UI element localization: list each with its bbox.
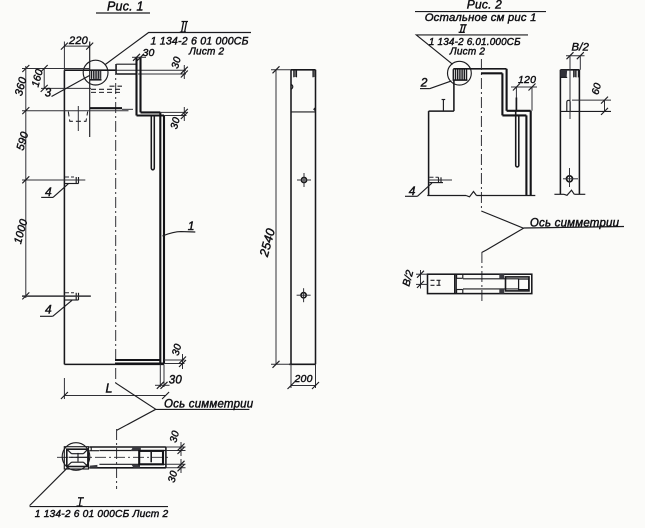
svg-text:Лист 2: Лист 2	[188, 46, 225, 57]
svg-text:Остальное см рис 1: Остальное см рис 1	[425, 12, 537, 24]
svg-text:Рис. 1: Рис. 1	[107, 0, 144, 14]
svg-text:1 134-2 6 01 000СБ Лист 2: 1 134-2 6 01 000СБ Лист 2	[35, 509, 169, 520]
svg-text:Рис. 2: Рис. 2	[467, 0, 502, 12]
svg-text:Лист 2: Лист 2	[449, 46, 486, 57]
svg-text:В/2: В/2	[572, 42, 590, 54]
svg-text:Ось симметрии: Ось симметрии	[164, 399, 254, 411]
svg-text:L: L	[106, 381, 113, 395]
svg-text:4: 4	[45, 303, 52, 317]
svg-text:120: 120	[518, 74, 536, 86]
svg-text:2: 2	[420, 76, 428, 90]
svg-text:200: 200	[294, 373, 313, 385]
svg-text:30: 30	[143, 47, 155, 59]
svg-text:3: 3	[45, 88, 52, 100]
svg-text:Ось симметрии: Ось симметрии	[530, 217, 620, 229]
svg-text:30: 30	[169, 375, 183, 387]
svg-text:4: 4	[409, 184, 416, 198]
svg-text:1: 1	[188, 219, 195, 233]
svg-text:220: 220	[68, 35, 89, 47]
